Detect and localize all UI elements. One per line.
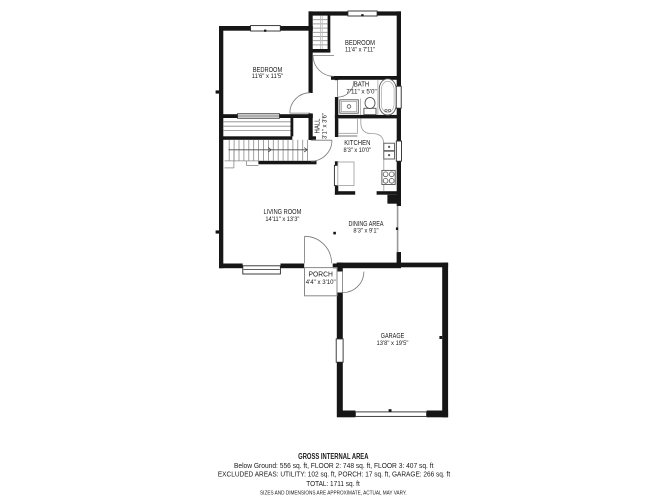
svg-text:SIZES AND DIMENSIONS ARE APPRO: SIZES AND DIMENSIONS ARE APPROXIMATE, AC… (260, 491, 407, 497)
svg-text:KITCHEN: KITCHEN (344, 138, 370, 147)
svg-text:TOTAL: 1711 sq. ft: TOTAL: 1711 sq. ft (306, 479, 360, 488)
svg-text:14'11" x 13'3": 14'11" x 13'3" (265, 216, 299, 223)
svg-text:HALL: HALL (313, 119, 322, 134)
svg-text:11'6" x 11'5": 11'6" x 11'5" (252, 73, 284, 80)
svg-text:3'1" x 3'6": 3'1" x 3'6" (321, 113, 328, 139)
svg-text:8'3" x 10'0": 8'3" x 10'0" (344, 147, 372, 154)
svg-text:11'4" x 7'11": 11'4" x 7'11" (345, 47, 375, 54)
svg-text:GROSS INTERNAL AREA: GROSS INTERNAL AREA (298, 452, 369, 461)
svg-text:7'11" x 5'0": 7'11" x 5'0" (346, 89, 377, 96)
svg-text:4'4" x 3'10": 4'4" x 3'10" (306, 279, 336, 286)
svg-text:EXCLUDED AREAS: UTILITY: 102 s: EXCLUDED AREAS: UTILITY: 102 sq. ft, POR… (218, 470, 450, 479)
svg-text:Below Ground: 556 sq. ft, FLOO: Below Ground: 556 sq. ft, FLOOR 2: 748 s… (234, 461, 434, 470)
svg-text:PORCH: PORCH (309, 270, 333, 279)
svg-text:GARAGE: GARAGE (381, 331, 405, 340)
svg-text:BATH: BATH (354, 79, 369, 88)
svg-text:13'8" x 19'5": 13'8" x 19'5" (377, 340, 409, 347)
svg-text:8'3" x 9'1": 8'3" x 9'1" (353, 227, 378, 234)
